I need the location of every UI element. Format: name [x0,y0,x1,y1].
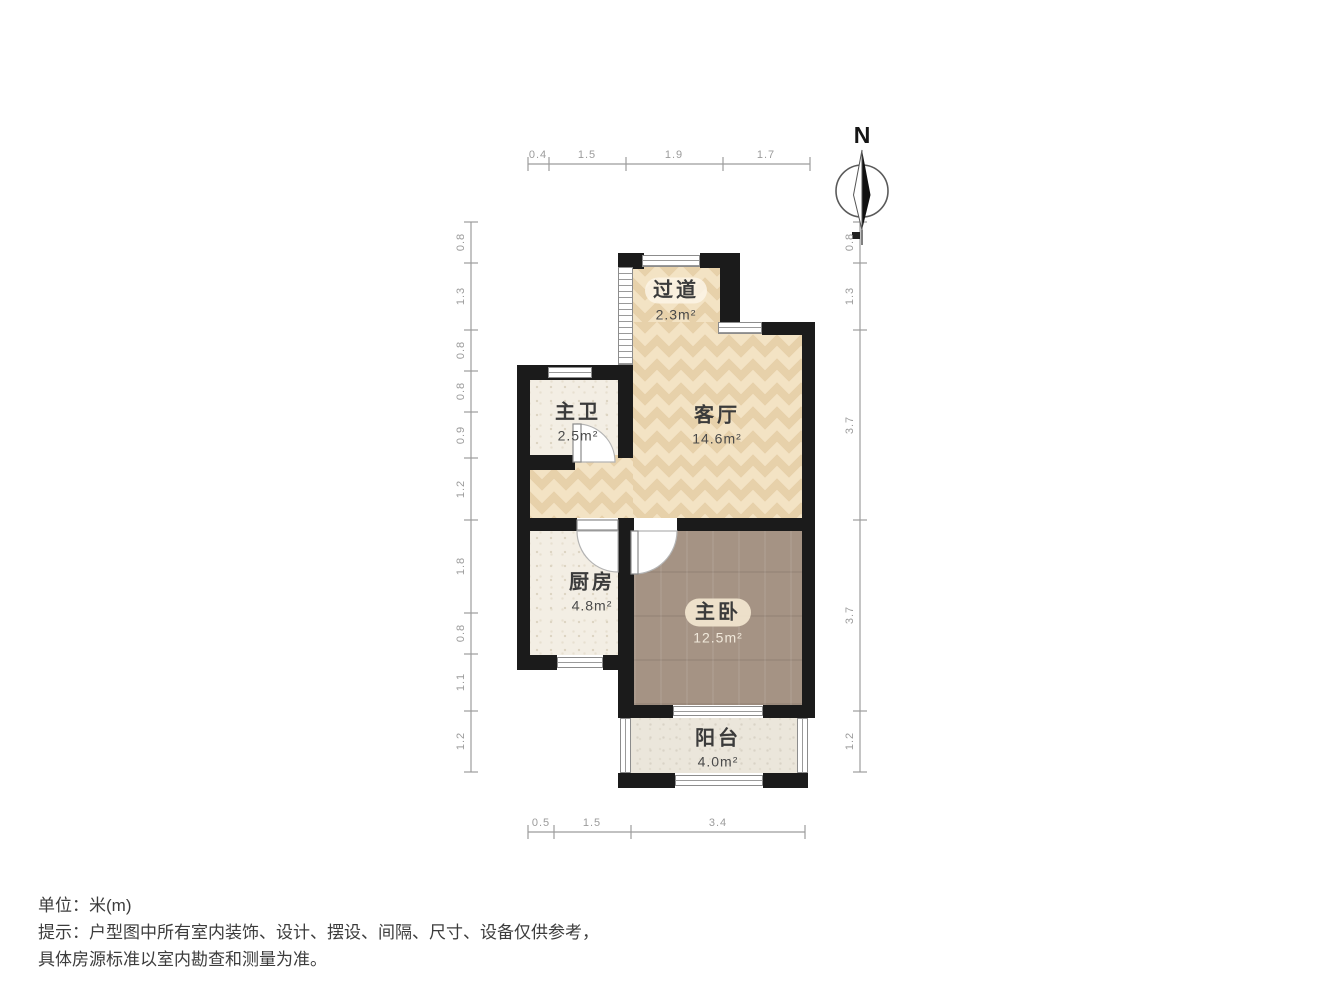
window-hallway-left [618,267,633,365]
wall-bedroom-left-lower [618,655,634,712]
wall-kitchen-right [618,518,634,670]
wall-living-bedroom-divider [677,518,815,531]
room-name-hallway: 过道 [645,278,707,304]
room-label-kitchen: 厨房 4.8m² [569,571,615,614]
dim-label-left-1: 1.3 [455,287,467,305]
dim-label-top-1: 1.5 [578,149,596,161]
window-balcony-bottom [675,775,763,786]
unit-note: 单位：米(m) [38,892,599,919]
floor-plan-page: 0.4 1.5 1.9 1.7 0.5 1.5 3.4 0.8 1.3 0.8 … [0,0,1333,1000]
wall-kitchen-bottom-left [517,655,557,670]
dim-label-left-9: 1.2 [455,732,467,750]
dim-label-left-5: 1.2 [455,480,467,498]
dim-label-right-1: 1.3 [844,287,856,305]
room-label-hallway: 过道 2.3m² [645,278,707,323]
wall-balcony-bottom-left [618,773,675,788]
room-label-bathroom: 主卫 2.5m² [555,401,601,444]
north-compass: N [810,116,914,248]
compass-needle-light [854,150,863,230]
window-bathroom-top [548,367,592,378]
window-balcony-left [620,718,631,773]
dim-label-right-3: 3.7 [844,606,856,624]
disclaimer-line-2: 具体房源标准以室内勘查和测量为准。 [38,946,599,973]
north-label: N [854,122,871,148]
dim-label-top-3: 1.7 [757,149,775,161]
compass-circle [836,165,888,217]
room-area-living: 14.6m² [692,431,742,447]
room-label-balcony: 阳台 4.0m² [695,727,741,770]
dim-label-left-8: 1.1 [455,673,467,691]
dim-label-bottom-1: 1.5 [583,817,601,829]
room-label-living: 客厅 14.6m² [692,404,742,447]
dim-label-right-0: 0.8 [844,233,856,251]
room-area-hallway: 2.3m² [645,307,707,323]
room-name-kitchen: 厨房 [569,571,615,595]
wall-balcony-bottom-right [763,773,808,788]
room-name-balcony: 阳台 [695,727,741,751]
window-living-top [718,322,762,334]
room-name-bedroom: 主卧 [685,599,751,627]
window-balcony-top [673,706,763,716]
wall-right-outer [802,322,815,712]
room-area-bathroom: 2.5m² [555,428,601,444]
dim-label-left-0: 0.8 [455,233,467,251]
room-area-bedroom: 12.5m² [685,630,751,646]
disclaimer-line-1: 提示：户型图中所有室内装饰、设计、摆设、间隔、尺寸、设备仅供参考， [38,919,599,946]
wall-bathroom-right [618,365,633,458]
footer-notes: 单位：米(m) 提示：户型图中所有室内装饰、设计、摆设、间隔、尺寸、设备仅供参考… [38,892,599,973]
dim-label-top-2: 1.9 [665,149,683,161]
compass-needle-dark [862,150,871,230]
dim-label-left-2: 0.8 [455,341,467,359]
window-kitchen-bottom [557,657,603,668]
dim-label-right-2: 3.7 [844,416,856,434]
wall-kitchen-top [517,518,577,531]
dim-label-top-0: 0.4 [529,149,547,161]
room-area-kitchen: 4.8m² [569,598,615,614]
wall-bathroom-bottom [517,455,575,470]
dim-label-left-4: 0.9 [455,426,467,444]
wall-balcony-top-right [763,705,815,718]
dim-label-bottom-2: 3.4 [709,817,727,829]
room-area-balcony: 4.0m² [695,754,741,770]
window-hallway-top [642,255,700,267]
room-name-bathroom: 主卫 [555,401,601,425]
dim-label-left-6: 1.8 [455,557,467,575]
dim-label-left-3: 0.8 [455,382,467,400]
room-label-bedroom: 主卧 12.5m² [685,599,751,646]
wall-hallway-right [720,265,740,322]
dim-label-bottom-0: 0.5 [532,817,550,829]
window-balcony-right [797,718,808,773]
dim-label-right-4: 1.2 [844,732,856,750]
room-name-living: 客厅 [692,404,742,428]
dim-label-left-7: 0.8 [455,624,467,642]
wall-balcony-top-left [618,705,673,718]
